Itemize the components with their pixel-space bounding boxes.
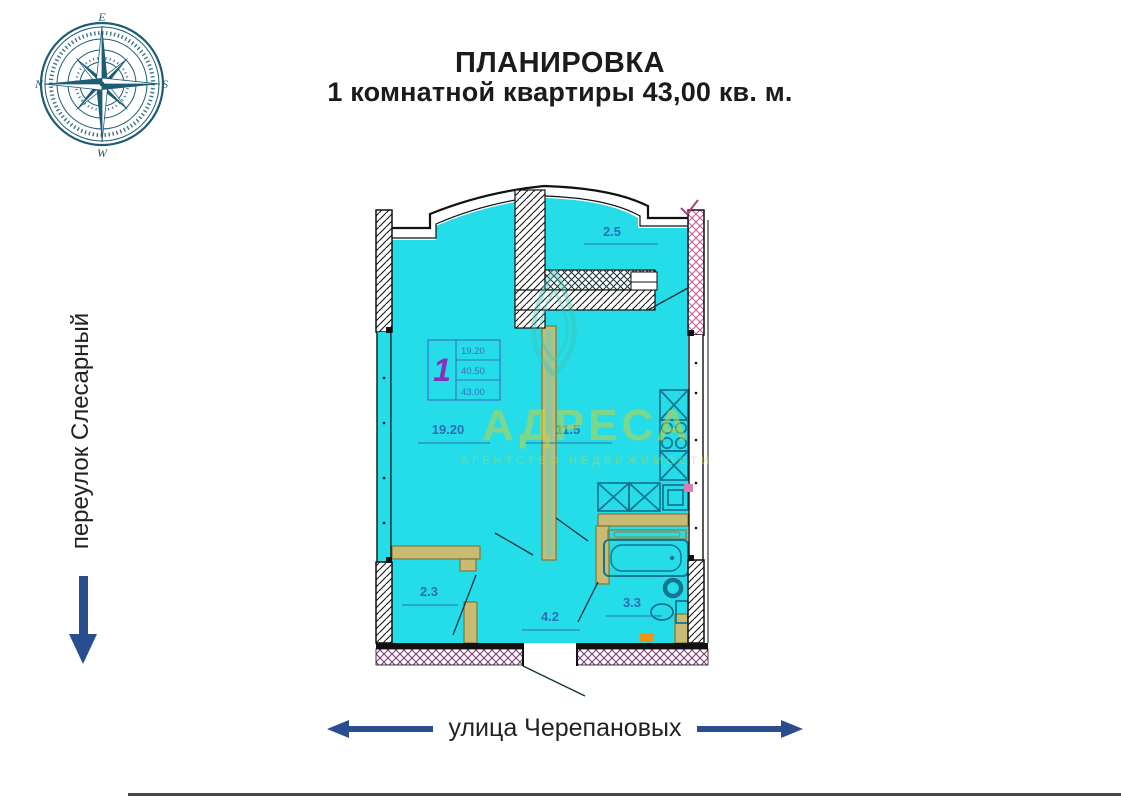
watermark-name: АДРЕСА bbox=[482, 401, 692, 450]
stamp-living-area: 19.20 bbox=[461, 346, 485, 357]
pink-marker bbox=[684, 484, 693, 492]
room-area-bathroom: 3.3 bbox=[623, 595, 641, 610]
room-area-wardrobe: 2.3 bbox=[420, 584, 438, 599]
compass-letter-top: E bbox=[97, 10, 106, 24]
right-arrow-icon bbox=[697, 720, 803, 738]
street-label-bottom: улица Черепановых bbox=[449, 714, 682, 743]
floor-drain-marker bbox=[640, 633, 654, 642]
page-edge-line bbox=[128, 793, 1121, 796]
compass-letter-left: N bbox=[34, 77, 44, 91]
room-area-living: 19.20 bbox=[432, 422, 465, 437]
compass-letter-bottom: W bbox=[97, 146, 108, 160]
compass-letter-right: S bbox=[162, 77, 168, 91]
left-arrow-icon bbox=[327, 720, 433, 738]
room-area-hallway: 4.2 bbox=[541, 609, 559, 624]
compass-rose: E S W N bbox=[32, 8, 172, 160]
street-bottom-row: улица Черепановых bbox=[322, 714, 808, 743]
room-area-balcony: 2.5 bbox=[603, 224, 621, 239]
page: ПЛАНИРОВКА 1 комнатной квартиры 43,00 кв… bbox=[0, 0, 1121, 800]
title-line-2: 1 комнатной квартиры 43,00 кв. м. bbox=[280, 78, 840, 106]
stamp-total-area: 43.00 bbox=[461, 387, 485, 398]
page-title: ПЛАНИРОВКА 1 комнатной квартиры 43,00 кв… bbox=[280, 48, 840, 106]
stamp-rooms-count: 1 bbox=[433, 352, 451, 388]
title-line-1: ПЛАНИРОВКА bbox=[280, 48, 840, 78]
stamp-floor-area: 40.50 bbox=[461, 366, 485, 377]
street-label-left: переулок Слесарный bbox=[67, 276, 97, 586]
floor-plan: 1 19.20 40.50 43.00 2.5 19.20 11.5 2.3 4… bbox=[372, 178, 712, 702]
window-band-left bbox=[377, 332, 391, 562]
down-arrow-icon bbox=[66, 576, 100, 666]
watermark-tagline: АГЕНТСТВО НЕДВИЖИМОСТИ bbox=[461, 455, 712, 467]
